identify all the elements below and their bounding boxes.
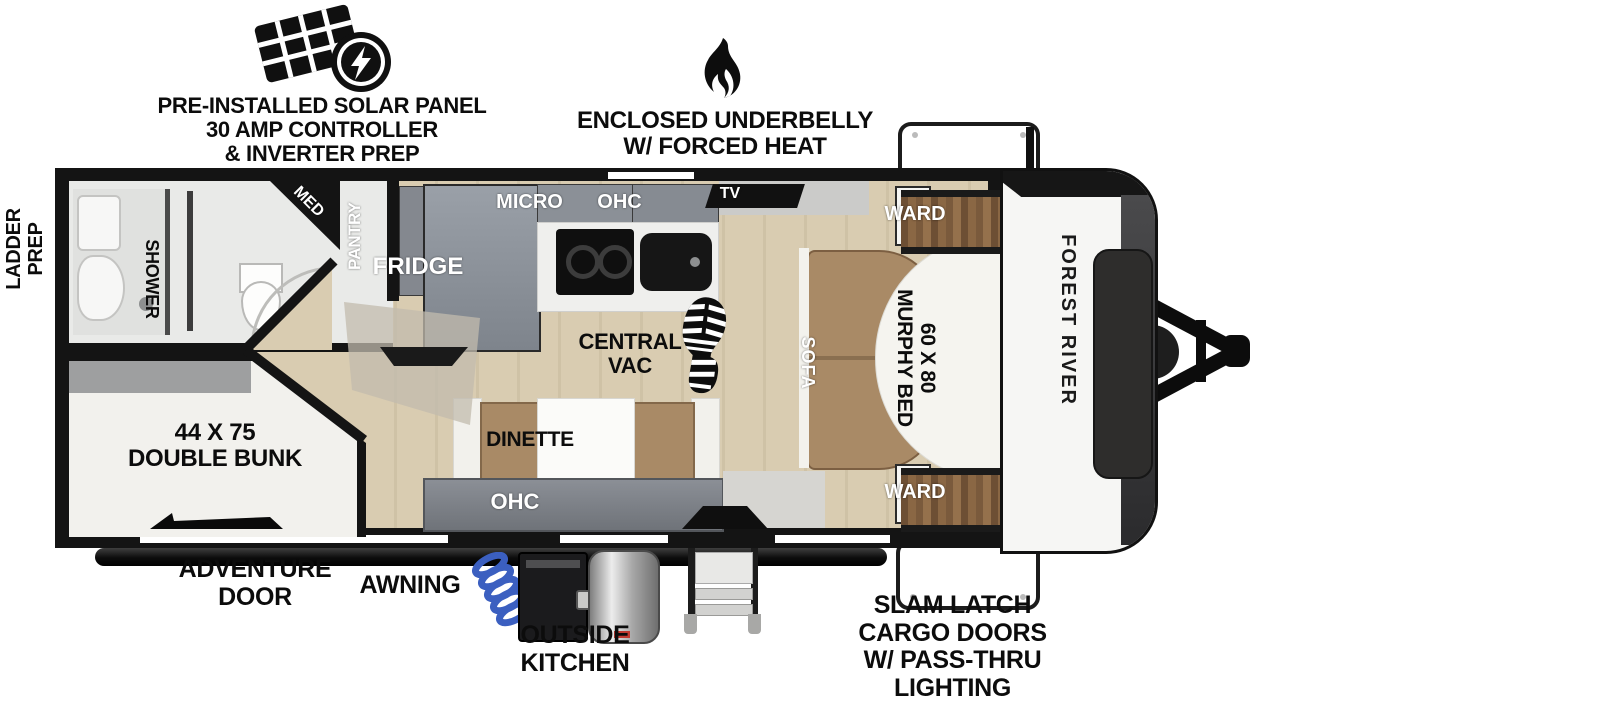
shower-seat [77, 195, 121, 251]
floorplan-canvas: PRE-INSTALLED SOLAR PANEL 30 AMP CONTROL… [0, 0, 1600, 704]
shower-pan [77, 255, 125, 321]
toilet-icon [241, 281, 281, 331]
shower-label: SHOWER [139, 209, 161, 349]
double-bunk-line1: 44 X 75 [90, 420, 340, 446]
step-foot [748, 614, 761, 634]
solar-line1: PRE-INSTALLED SOLAR PANEL [142, 94, 502, 118]
ladder-prep-line1: LADDER [3, 159, 25, 339]
dinette-bench-right [633, 402, 695, 484]
bunk-headboard [69, 361, 251, 393]
ward-top-label: WARD [860, 204, 970, 225]
underbelly-line1: ENCLOSED UNDERBELLY [540, 108, 910, 134]
griddle-lid-edge [526, 560, 580, 568]
murphy-bed-line2: MURPHY BED [893, 248, 916, 468]
window-dash [560, 535, 668, 543]
tv-label: TV [700, 186, 760, 203]
underbelly-callout: ENCLOSED UNDERBELLY W/ FORCED HEAT [540, 108, 910, 161]
cargo-line4: LIGHTING [820, 675, 1085, 703]
faucet-icon [690, 257, 700, 267]
solar-panel-icon [248, 0, 398, 96]
double-bunk-line2: DOUBLE BUNK [90, 446, 340, 472]
ladder-prep-line2: PREP [25, 159, 47, 339]
shower-glass [187, 191, 193, 331]
entry-landing [723, 471, 825, 528]
outside-kitchen-line1: OUTSIDE [470, 622, 680, 650]
solar-callout: PRE-INSTALLED SOLAR PANEL 30 AMP CONTROL… [142, 94, 502, 167]
cooktop-icon [556, 229, 634, 295]
dinette-label: DINETTE [482, 428, 578, 451]
solar-line3: & INVERTER PREP [142, 142, 502, 166]
pantry-label: PANTRY [346, 186, 366, 286]
solar-line2: 30 AMP CONTROLLER [142, 118, 502, 142]
dinette-endwall-right [691, 398, 720, 482]
ohc-dinette-label: OHC [440, 490, 590, 513]
murphy-bed-line1: 60 X 80 [916, 248, 939, 468]
ward-bottom-label: WARD [860, 482, 970, 503]
micro-label: MICRO [482, 192, 577, 213]
entry-steps [684, 548, 762, 634]
brand-label: FOREST RIVER [1055, 225, 1079, 415]
step-platform [695, 552, 753, 584]
outside-kitchen-line2: KITCHEN [470, 650, 680, 678]
double-bunk-label: 44 X 75 DOUBLE BUNK [90, 420, 340, 473]
pantry-wall [387, 181, 399, 301]
main-floor [69, 181, 988, 528]
step-tread [695, 588, 753, 600]
ladder-prep-callout: LADDER PREP [3, 159, 49, 339]
window-dash [775, 535, 890, 543]
step-foot [684, 614, 697, 634]
fridge-label: FRIDGE [368, 254, 468, 279]
window-dash [608, 172, 694, 179]
flame-icon [690, 36, 750, 104]
dinette-endwall-left [453, 398, 482, 482]
sink-icon [640, 233, 712, 291]
burner-icon [566, 245, 600, 279]
screw-icon [912, 132, 918, 138]
burner-icon [598, 245, 632, 279]
step-rail-left [688, 548, 695, 620]
step-tread [695, 604, 753, 616]
cargo-line3: W/ PASS-THRU [820, 647, 1085, 675]
awning-callout: AWNING [330, 572, 490, 600]
outside-kitchen-callout: OUTSIDE KITCHEN [470, 622, 680, 677]
sofa-label: SOFA [795, 303, 817, 423]
murphy-bed-label: 60 X 80 MURPHY BED [891, 248, 939, 468]
cargo-line1: SLAM LATCH [820, 592, 1085, 620]
propane-cover [1093, 249, 1153, 479]
front-cap [1000, 168, 1158, 554]
ohc-kitchen-label: OHC [577, 192, 662, 213]
cap-top-band [1003, 171, 1155, 197]
cargo-line2: CARGO DOORS [820, 620, 1085, 648]
underbelly-line2: W/ FORCED HEAT [540, 134, 910, 160]
tongue-jack-post [1026, 127, 1034, 171]
cargo-doors-callout: SLAM LATCH CARGO DOORS W/ PASS-THRU LIGH… [820, 592, 1085, 702]
